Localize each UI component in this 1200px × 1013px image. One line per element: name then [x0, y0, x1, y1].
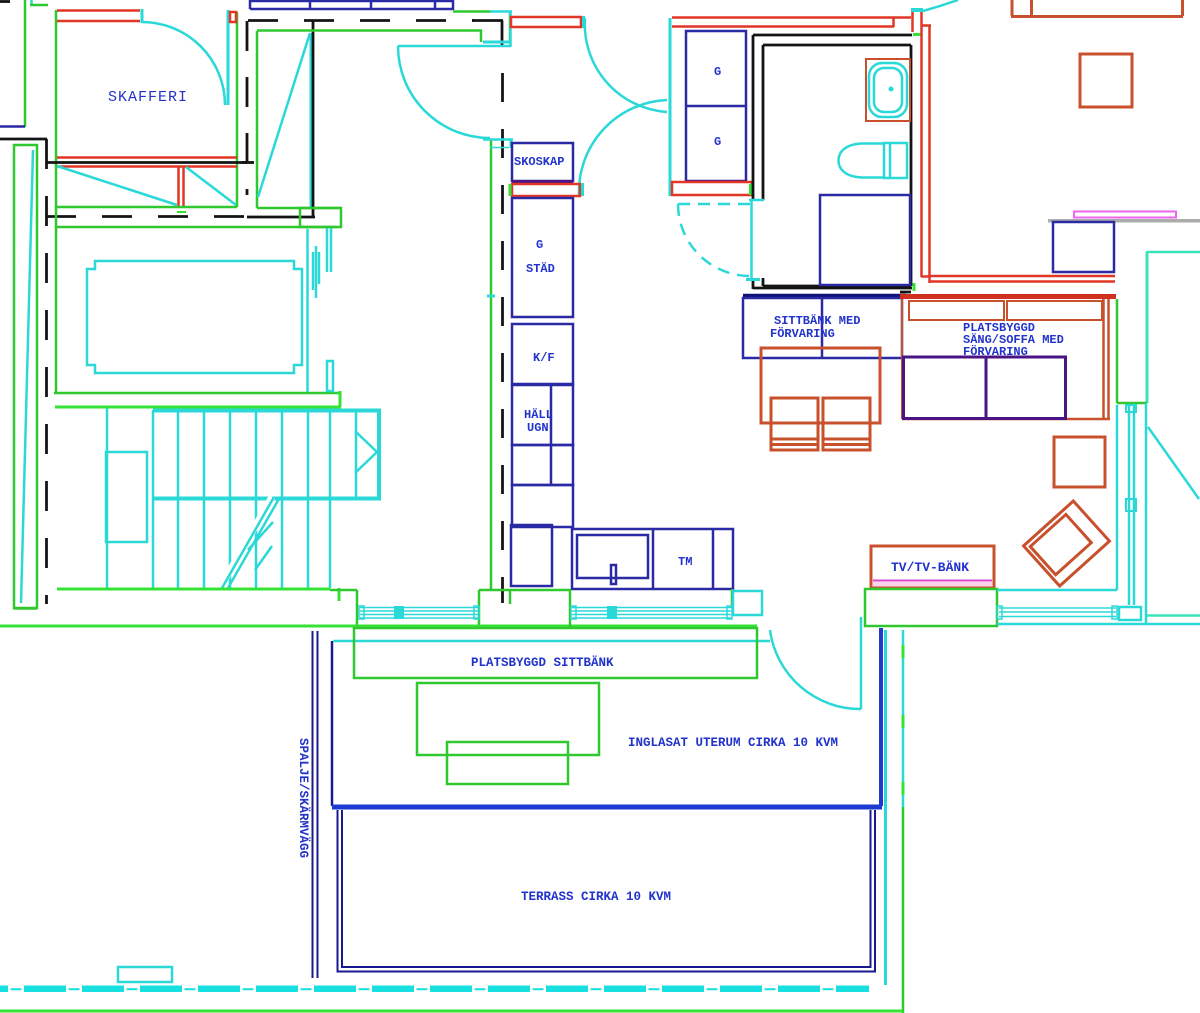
svg-text:G: G	[536, 238, 543, 252]
svg-text:FÖRVARING: FÖRVARING	[770, 325, 835, 341]
svg-text:TM: TM	[678, 555, 692, 569]
svg-text:G: G	[714, 135, 721, 149]
svg-text:SKOSKAP: SKOSKAP	[514, 155, 564, 169]
svg-text:SITTBÄNK MED: SITTBÄNK MED	[774, 313, 860, 328]
svg-text:SPALJE/SKÄRMVÄGG: SPALJE/SKÄRMVÄGG	[296, 738, 311, 858]
svg-text:TV/TV-BÄNK: TV/TV-BÄNK	[891, 560, 969, 575]
svg-text:UGN: UGN	[527, 421, 549, 435]
svg-text:SKAFFERI: SKAFFERI	[108, 89, 188, 106]
svg-text:PLATSBYGGD SITTBÄNK: PLATSBYGGD SITTBÄNK	[471, 655, 614, 670]
svg-text:K/F: K/F	[533, 351, 555, 365]
svg-text:HÄLL: HÄLL	[524, 407, 553, 422]
svg-text:TERRASS CIRKA 10 KVM: TERRASS CIRKA 10 KVM	[521, 890, 671, 904]
svg-text:INGLASAT UTERUM CIRKA 10 KVM: INGLASAT UTERUM CIRKA 10 KVM	[628, 736, 838, 750]
svg-text:G: G	[714, 65, 721, 79]
svg-text:STÄD: STÄD	[526, 261, 555, 276]
